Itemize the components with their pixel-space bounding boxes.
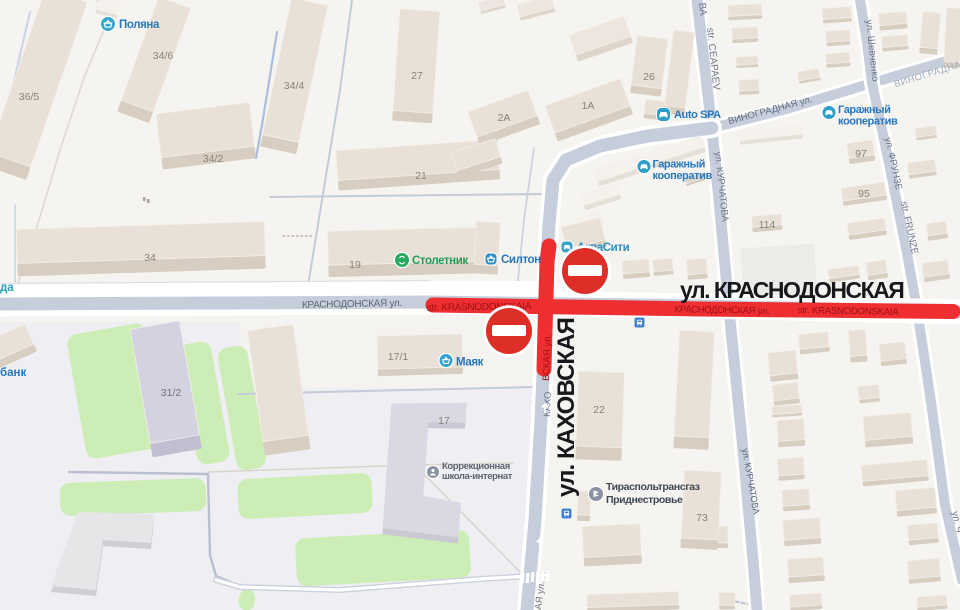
svg-text:Гаражный: Гаражный	[653, 158, 705, 170]
svg-text:ВСКАЯ ул.: ВСКАЯ ул.	[541, 334, 554, 381]
svg-text:да: да	[0, 282, 14, 294]
svg-text:1А: 1А	[582, 100, 595, 112]
svg-text:ул. КРАСНОДОНСКАЯ: ул. КРАСНОДОНСКАЯ	[680, 277, 903, 303]
svg-text:114: 114	[759, 219, 776, 231]
svg-text:Маяк: Маяк	[456, 357, 484, 369]
svg-text:КРАСНОДОНСКАЯ ул.: КРАСНОДОНСКАЯ ул.	[302, 298, 402, 311]
svg-text:31/2: 31/2	[161, 387, 182, 399]
svg-text:Силтон: Силтон	[501, 254, 541, 266]
svg-text:КРАСНОДОНСКАЯ ул.: КРАСНОДОНСКАЯ ул.	[675, 304, 770, 317]
svg-text:34/6: 34/6	[153, 50, 174, 62]
svg-text:банк: банк	[0, 367, 26, 379]
svg-text:Приднестровье: Приднестровье	[606, 494, 683, 506]
svg-text:str. KRASNODONSKAIA: str. KRASNODONSKAIA	[798, 305, 900, 318]
svg-text:73: 73	[696, 512, 708, 524]
svg-text:Гаражный: Гаражный	[838, 104, 890, 116]
svg-text:Столетник: Столетник	[412, 255, 468, 267]
svg-text:ВА: ВА	[696, 2, 708, 16]
svg-text:17: 17	[438, 415, 450, 427]
svg-text:34/2: 34/2	[203, 153, 224, 165]
svg-text:21: 21	[415, 170, 427, 182]
svg-text:34: 34	[144, 252, 156, 264]
svg-text:Тираспольтрансгаз: Тираспольтрансгаз	[606, 481, 700, 493]
svg-text:ул. КАХОВСКАЯ: ул. КАХОВСКАЯ	[553, 318, 580, 497]
svg-text:26: 26	[643, 71, 655, 83]
svg-text:97: 97	[855, 148, 867, 160]
svg-text:27: 27	[411, 70, 423, 82]
svg-text:34/4: 34/4	[284, 80, 305, 92]
svg-text:Поляна: Поляна	[119, 19, 160, 31]
svg-text:школа-интернат: школа-интернат	[442, 471, 513, 482]
svg-text:кооператив: кооператив	[653, 170, 713, 182]
svg-text:17/1: 17/1	[388, 351, 409, 363]
svg-text:кооператив: кооператив	[838, 116, 898, 128]
svg-text:36/5: 36/5	[19, 91, 40, 103]
svg-text:22: 22	[593, 404, 605, 416]
svg-text:19: 19	[349, 259, 361, 271]
svg-text:95: 95	[858, 188, 870, 200]
svg-text:Auto SPA: Auto SPA	[674, 109, 721, 121]
svg-text:2А: 2А	[498, 112, 511, 124]
